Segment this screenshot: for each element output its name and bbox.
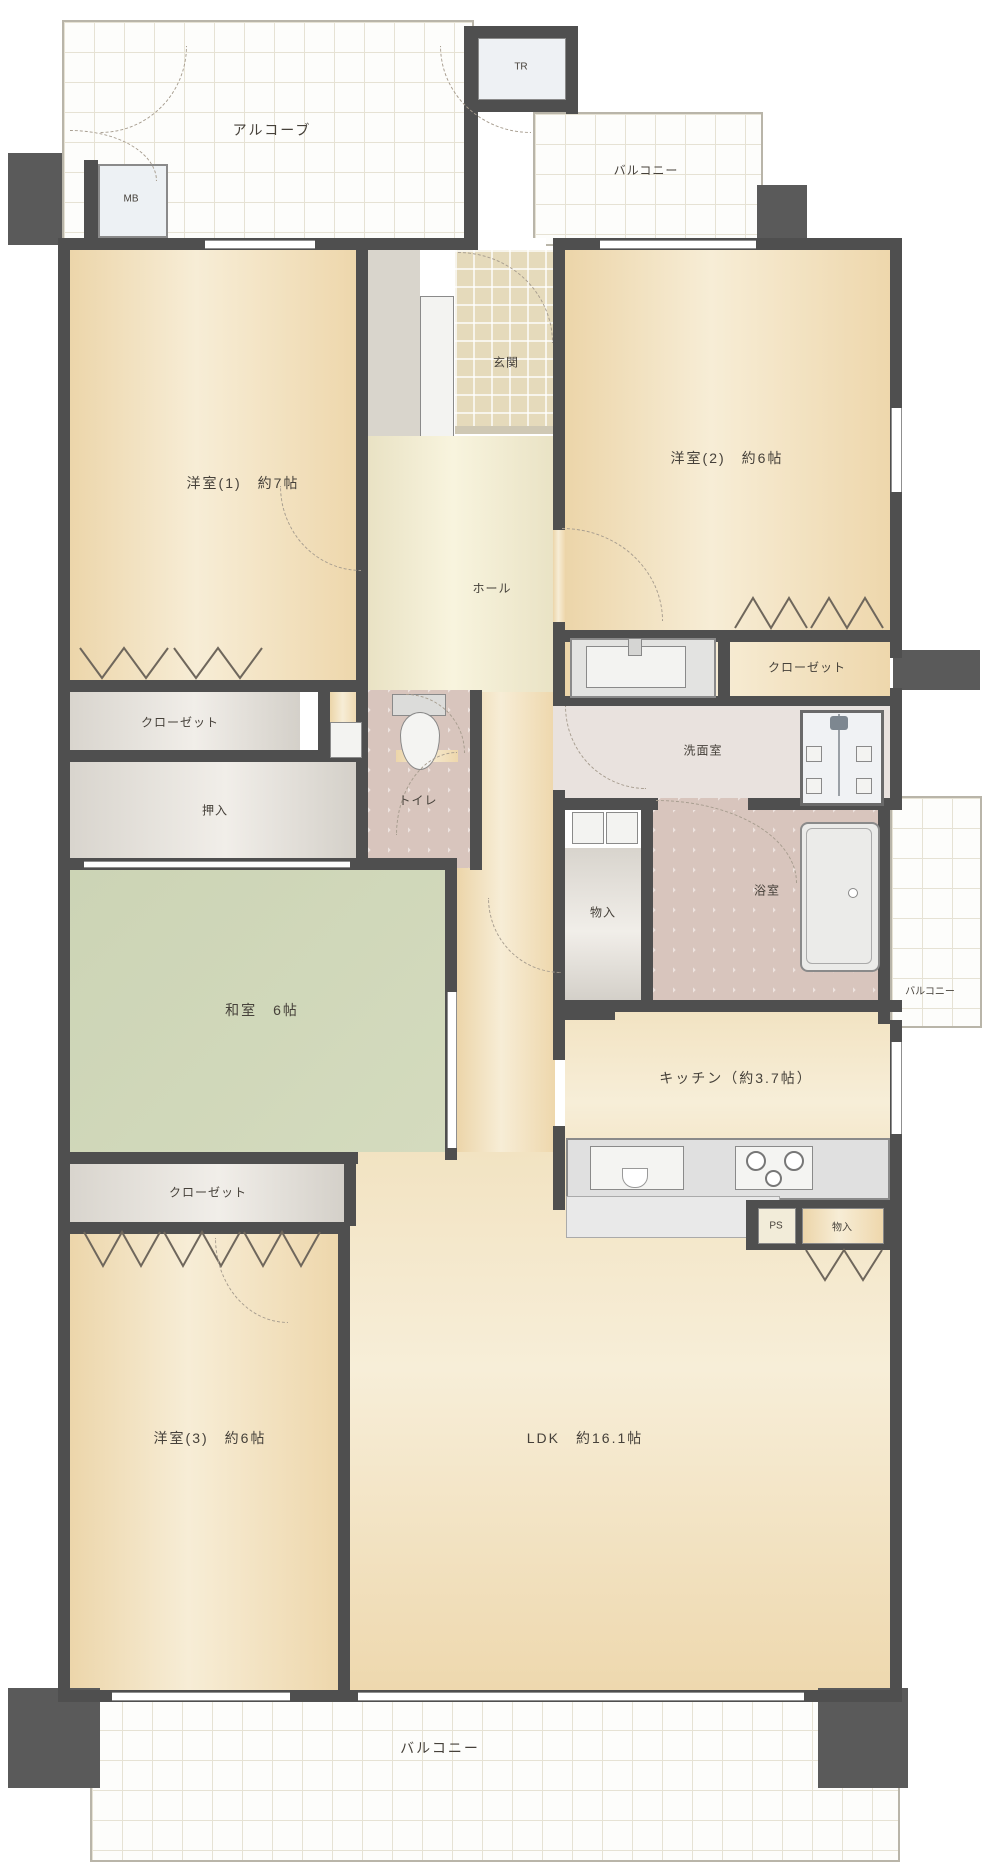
window-marker — [358, 1692, 804, 1701]
door-opening — [480, 238, 546, 250]
washer-pan-corner — [806, 778, 822, 794]
column-top-right — [757, 185, 807, 242]
wall — [718, 640, 730, 700]
washer-pan-corner — [856, 778, 872, 794]
balcony-bottom-label: バルコニー — [400, 1738, 480, 1758]
genkan-label: 玄関 — [493, 354, 519, 371]
folding-door-icon — [78, 646, 264, 682]
balcony-top-label: バルコニー — [614, 162, 679, 179]
room3-label: 洋室(3) 約6帖 — [154, 1428, 267, 1448]
wall — [553, 1126, 565, 1210]
room1-label: 洋室(1) 約7帖 — [187, 473, 300, 493]
window-marker — [891, 1042, 902, 1134]
hall-floor — [368, 436, 557, 692]
toilet-label: トイレ — [398, 792, 437, 809]
wall — [338, 1222, 350, 1692]
washitsu-label: 和室 6帖 — [225, 1000, 299, 1020]
column-bottom-right — [818, 1688, 908, 1788]
room1-floor — [66, 250, 356, 680]
wall — [641, 810, 653, 1000]
wall — [58, 238, 70, 1700]
folding-door-icon — [733, 594, 885, 630]
closet1-label: クローゼット — [141, 714, 219, 731]
ldk-label: LDK 約16.1帖 — [527, 1428, 643, 1448]
washroom-label: 洗面室 — [683, 742, 722, 759]
washer-pan-corner — [856, 746, 872, 762]
sliding-door-marker — [84, 861, 350, 868]
balcony-top-floor — [533, 112, 763, 246]
kitchen-label: キッチン（約3.7帖） — [659, 1068, 812, 1088]
vanity-faucet-icon — [628, 638, 642, 656]
wall — [553, 1008, 565, 1060]
shoe-cabinet — [368, 250, 420, 446]
window-marker — [112, 1692, 290, 1701]
door-opening — [553, 706, 565, 790]
wall — [356, 690, 368, 870]
window-marker — [891, 408, 902, 492]
pipe-space-label: PS — [769, 1221, 782, 1232]
oshiire-label: 押入 — [202, 802, 228, 819]
window-marker — [205, 240, 315, 249]
hall-label: ホール — [472, 580, 511, 597]
folding-door-icon — [804, 1248, 884, 1284]
wall-stub-right — [893, 650, 980, 690]
window-marker — [600, 240, 756, 249]
balcony-right-label: バルコニー — [905, 983, 955, 998]
wall — [318, 692, 330, 752]
closet2-label: クローゼット — [768, 659, 846, 676]
wall — [470, 690, 482, 870]
closet3-label: クローゼット — [169, 1184, 247, 1201]
genkan-step — [455, 426, 557, 434]
storage1-floor — [565, 848, 641, 1000]
bathtub-inner — [806, 828, 872, 964]
room2-label: 洋室(2) 約6帖 — [671, 448, 784, 468]
washer-pan-corner — [806, 746, 822, 762]
wall — [356, 250, 368, 696]
utility-box — [606, 812, 638, 844]
wall — [890, 688, 902, 802]
wall — [464, 26, 578, 38]
washer-faucet-icon — [830, 716, 848, 730]
stove-burner-icon — [765, 1170, 782, 1187]
floor-plan: アルコーブ MB TR バルコニー 洋室(1) 約7帖 玄関 ホール 洋室(2)… — [0, 0, 1000, 1872]
utility-box — [572, 812, 604, 844]
room3-floor — [66, 1234, 338, 1692]
storage1-label: 物入 — [590, 904, 616, 921]
trunk-room-label: TR — [514, 62, 527, 73]
storage2-label: 物入 — [832, 1219, 852, 1234]
shoe-box — [420, 296, 454, 444]
bathtub-drain-icon — [848, 888, 858, 898]
stove-burner-icon — [746, 1151, 766, 1171]
toilet-hand-basin — [330, 722, 362, 758]
wall — [58, 750, 368, 762]
stove-burner-icon — [784, 1151, 804, 1171]
bathroom-label: 浴室 — [754, 882, 780, 899]
meter-box-label: MB — [124, 194, 139, 205]
column-bottom-left — [8, 1688, 100, 1788]
sliding-door-marker — [447, 992, 457, 1148]
balcony-bottom-floor — [90, 1698, 900, 1862]
alcove-label: アルコーブ — [233, 120, 312, 140]
wall — [58, 1152, 358, 1164]
column-top-left — [8, 153, 62, 245]
